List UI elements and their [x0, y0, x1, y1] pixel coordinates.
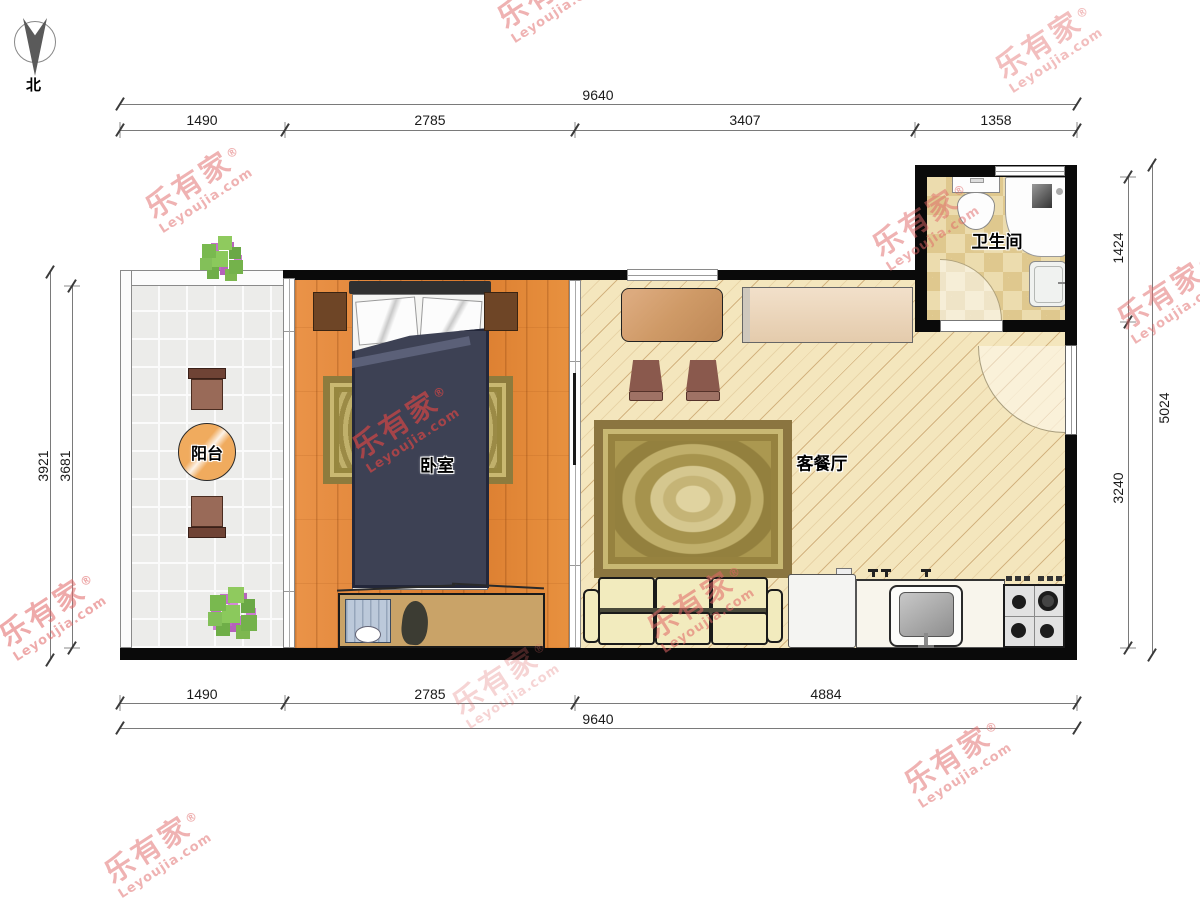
entry-door-leaf: [1065, 345, 1077, 435]
stove-knob: [1056, 576, 1062, 581]
brand-watermark: 乐有家® Leyoujia.com: [479, 0, 620, 55]
north-label: 北: [26, 74, 41, 95]
stove-knob: [1047, 576, 1053, 581]
dim-right-outer: 5024: [1156, 392, 1172, 423]
gas-stove: [1003, 584, 1065, 648]
dim-bottom-seg2: 2785: [414, 686, 445, 702]
sideboard-cabinet: [742, 287, 913, 343]
brand-watermark: 乐有家® Leyoujia.com: [86, 796, 227, 900]
stove-knob: [1024, 576, 1030, 581]
sofa-armrest-right: [766, 589, 783, 643]
burner: [1011, 623, 1026, 638]
sofa-seat-cushions: [598, 612, 768, 645]
shower-head: [1032, 184, 1052, 208]
dim-line: [120, 728, 1077, 729]
sofa-seat-cushion: [711, 612, 768, 645]
bed-headboard: [349, 281, 491, 294]
balcony-railing-top: [120, 270, 287, 286]
chair-seat: [191, 496, 223, 527]
bathroom-sink: [1029, 261, 1067, 307]
burner-large: [1038, 591, 1058, 611]
chair-backrest: [686, 391, 720, 401]
wardrobe: [338, 593, 545, 648]
window-mullion: [628, 275, 717, 276]
balcony-railing-left: [120, 270, 132, 648]
wall-top-living: [718, 270, 927, 280]
dim-top-seg1: 1490: [186, 112, 217, 128]
bathroom-label: 卫生间: [972, 228, 1023, 253]
sofa-seat-cushion: [598, 612, 655, 645]
living-dining-label: 客餐厅: [797, 450, 848, 475]
chair-backrest: [188, 527, 226, 538]
brand-watermark-text: 乐有家: [491, 0, 590, 35]
dining-chair-left: [629, 360, 663, 402]
balcony-chair-top: [188, 368, 226, 410]
brand-watermark-domain: Leyoujia.com: [496, 0, 620, 55]
brand-watermark: 乐有家® Leyoujia.com: [977, 0, 1118, 105]
chair-backrest: [188, 368, 226, 379]
shower-knob-dot: [1056, 188, 1063, 195]
dim-top-total: 9640: [582, 87, 613, 103]
wall-bathroom-bottom-left: [915, 320, 943, 332]
dim-left-outer: 3921: [35, 450, 51, 481]
brand-watermark: 乐有家® Leyoujia.com: [0, 559, 123, 672]
stove-knob: [1006, 576, 1012, 581]
brand-watermark: 乐有家® Leyoujia.com: [886, 706, 1027, 819]
sink-basin: [899, 592, 954, 637]
dim-bottom-seg3: 4884: [810, 686, 841, 702]
living-window: [627, 269, 718, 281]
dim-line: [1128, 177, 1129, 648]
faucet-mark: [921, 569, 931, 572]
shirt-collar: [355, 626, 381, 643]
dim-top-seg3: 3407: [729, 112, 760, 128]
folded-shirt: [345, 599, 391, 643]
bedroom-label: 卧室: [420, 452, 454, 477]
dim-top-seg4: 1358: [980, 112, 1011, 128]
stove-knob: [1015, 576, 1021, 581]
sliding-door-balcony: [283, 278, 295, 648]
dim-right-seg2: 3240: [1110, 472, 1126, 503]
door-panel-line: [289, 279, 290, 647]
chair-seat: [191, 379, 223, 410]
faucet-mark: [881, 569, 891, 572]
bathroom-window: [995, 166, 1065, 176]
window-mullion: [996, 171, 1064, 172]
door-leaf-line: [1071, 346, 1072, 434]
sofa-seat-cushion: [655, 612, 712, 645]
nightstand-left: [313, 292, 347, 331]
burner: [1040, 624, 1054, 638]
nightstand-right: [484, 292, 518, 331]
dim-line: [120, 703, 1077, 704]
dining-chair-right: [686, 360, 720, 402]
brand-watermark: 乐有家® Leyoujia.com: [127, 131, 268, 244]
dim-top-seg2: 2785: [414, 112, 445, 128]
dim-line: [120, 104, 1077, 105]
dining-table: [621, 288, 723, 342]
north-compass: 北: [10, 18, 62, 84]
chair-seat: [629, 360, 663, 391]
wall-right-lower: [1065, 435, 1077, 660]
balcony-label: 阳台: [191, 440, 223, 464]
chair-seat: [686, 360, 720, 391]
wall-bottom: [120, 648, 1077, 660]
stove-knob: [1038, 576, 1044, 581]
stove-grid-h: [1005, 616, 1063, 617]
dim-right-seg1: 1424: [1110, 232, 1126, 263]
dim-line: [1152, 165, 1153, 655]
living-rug: [594, 420, 792, 578]
sliding-indicator: [573, 373, 576, 465]
balcony-chair-bottom: [188, 494, 226, 538]
kitchen-sink: [889, 585, 963, 647]
dim-bottom-seg1: 1490: [186, 686, 217, 702]
dim-line: [120, 130, 1077, 131]
toilet-button: [970, 178, 984, 183]
sliding-door-bedroom-living: [569, 280, 581, 648]
fridge: [788, 574, 856, 648]
wall-bathroom-left: [915, 165, 927, 332]
bathroom-door-leaf: [940, 320, 1003, 332]
dim-bottom-total: 9640: [582, 711, 613, 727]
jacket: [400, 600, 430, 646]
wall-top-bedroom: [283, 270, 627, 280]
cabinet-edge: [743, 288, 750, 342]
wall-right-upper: [1065, 165, 1077, 345]
floor-plan-canvas: 卧室 客餐厅 卫生间 阳台 北 9640 1490 2785 3407 1358…: [0, 0, 1200, 900]
sink-inner: [1034, 266, 1063, 303]
chair-backrest: [629, 391, 663, 401]
faucet-mark: [868, 569, 878, 572]
burner: [1012, 595, 1026, 609]
dim-left-inner: 3681: [57, 450, 73, 481]
